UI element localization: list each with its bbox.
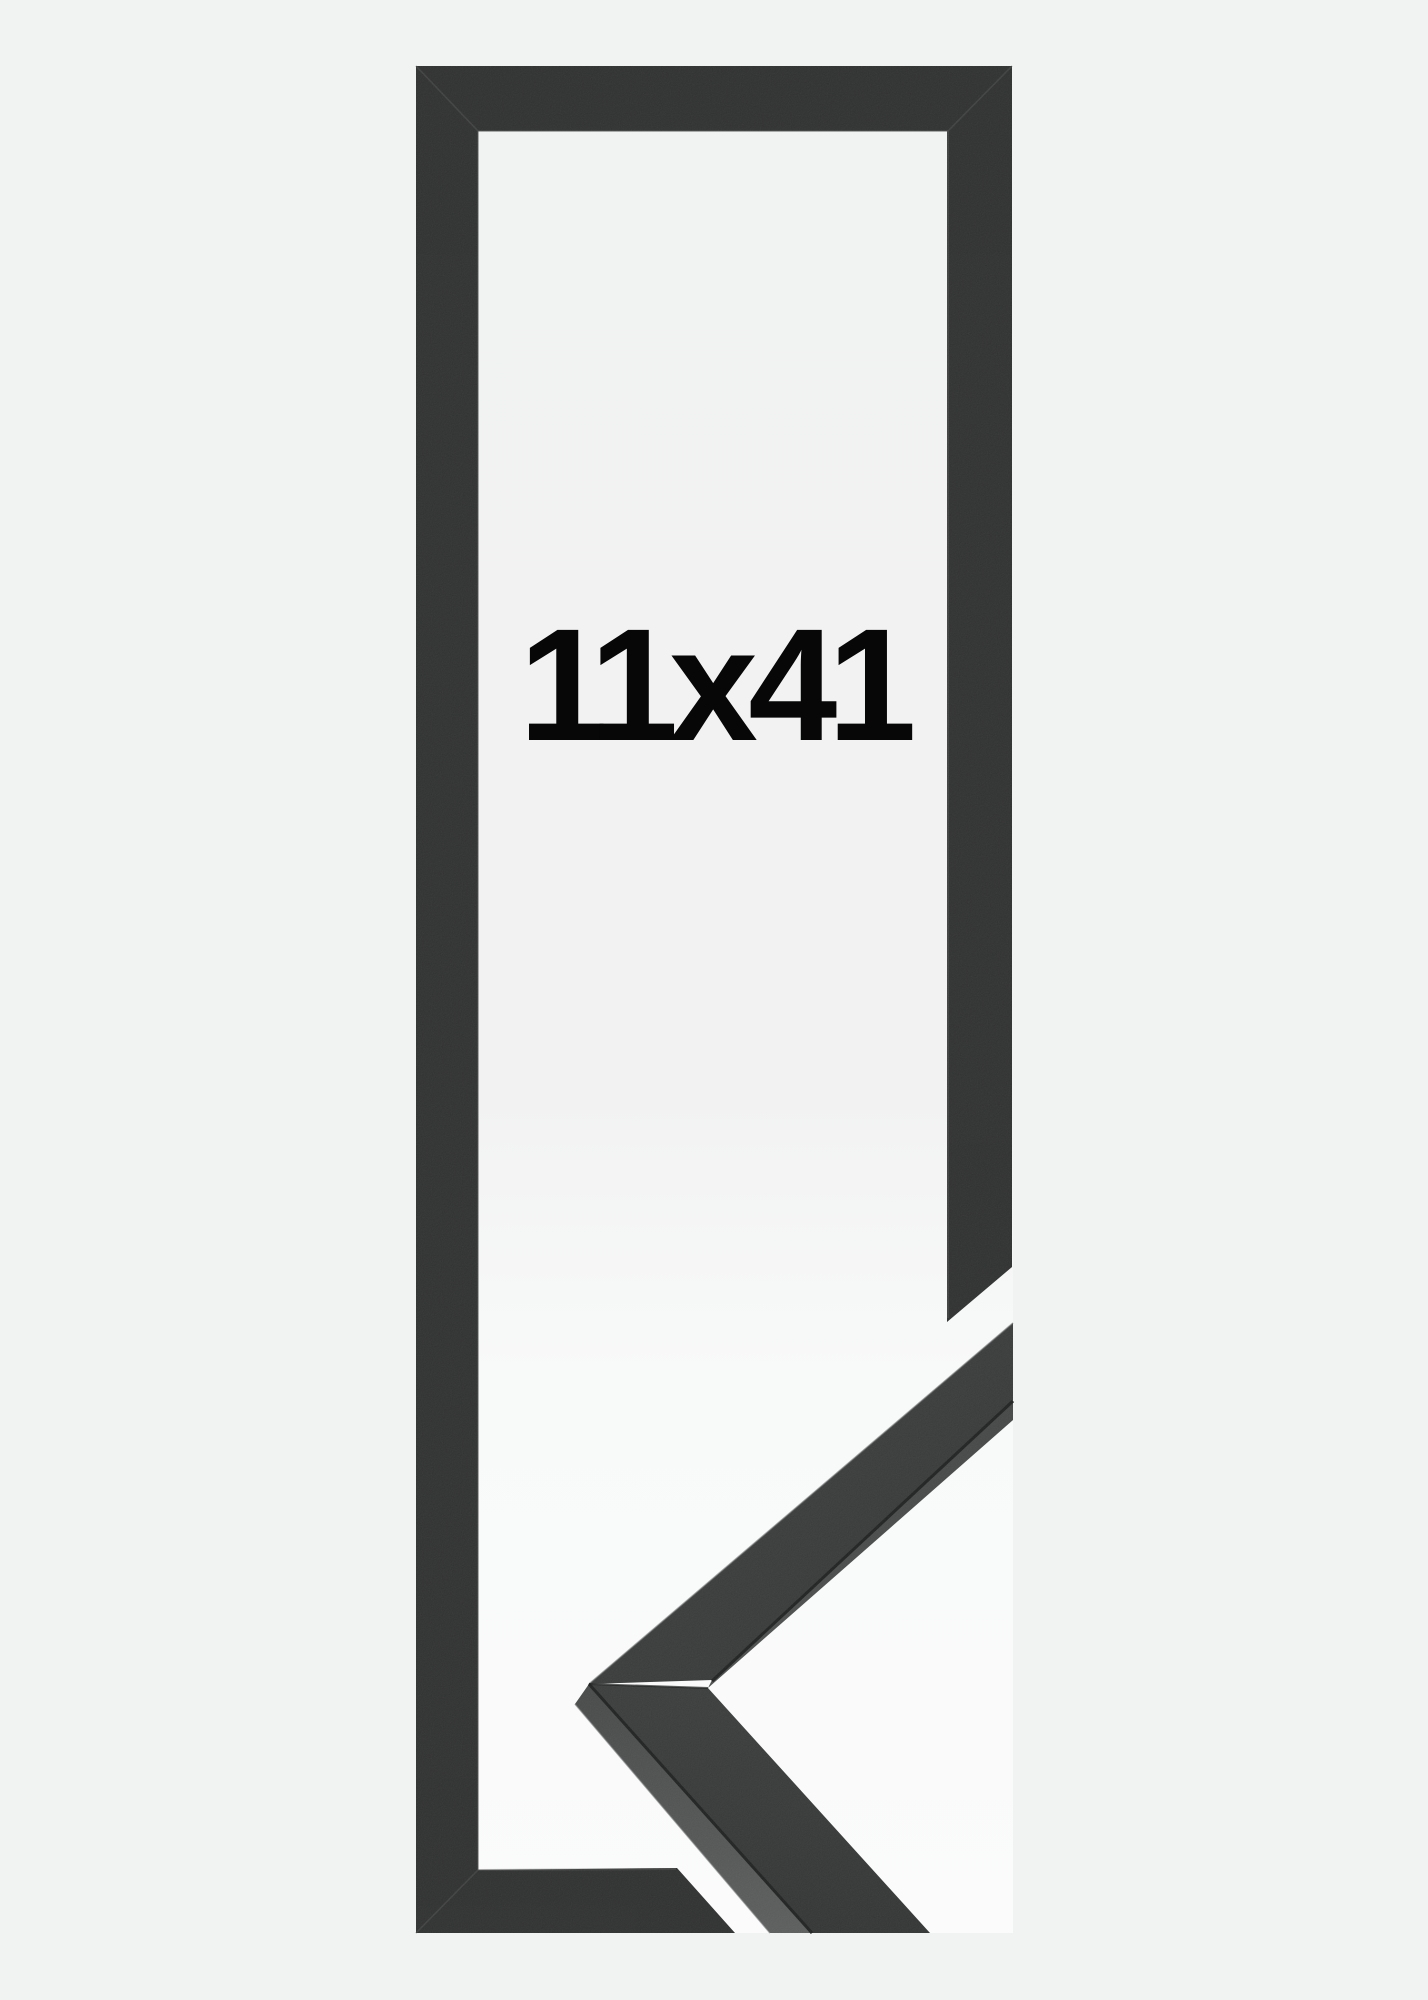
product-image-canvas: 11x41 (0, 0, 1428, 2000)
frame-size-label: 11x41 (478, 575, 948, 795)
frame-photo (0, 0, 1428, 2000)
